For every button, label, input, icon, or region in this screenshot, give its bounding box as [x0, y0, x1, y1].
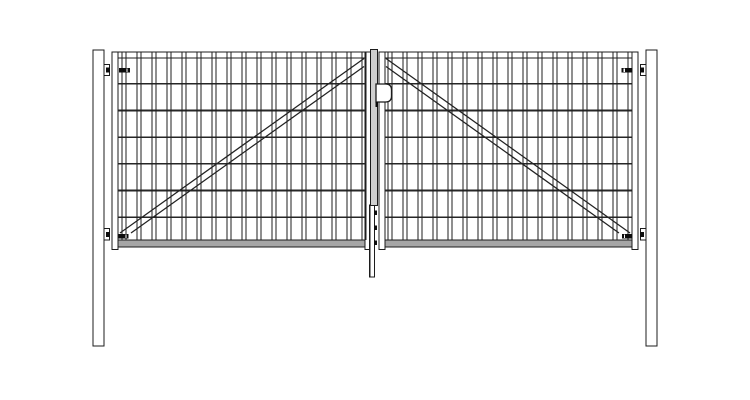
right-leaf [379, 52, 638, 250]
left-leaf [112, 52, 371, 250]
right-post [646, 50, 657, 346]
gate-technical-drawing [0, 0, 750, 400]
drop-rod [370, 205, 377, 277]
center-cover-profile [371, 50, 378, 206]
left-post [93, 50, 104, 346]
drawing-canvas [0, 0, 750, 400]
